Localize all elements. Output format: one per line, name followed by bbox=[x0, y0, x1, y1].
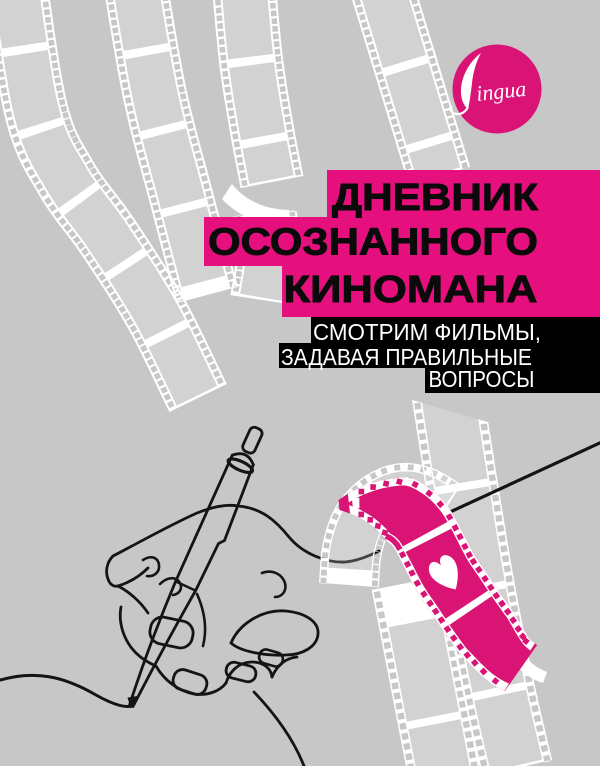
svg-text:ОСОЗНАННОГО: ОСОЗНАННОГО bbox=[208, 222, 538, 264]
svg-text:ingua: ingua bbox=[475, 76, 527, 106]
svg-text:КИНОМАНА: КИНОМАНА bbox=[284, 269, 538, 311]
svg-text:СМОТРИМ ФИЛЬМЫ,: СМОТРИМ ФИЛЬМЫ, bbox=[313, 319, 541, 345]
svg-text:ДНЕВНИК: ДНЕВНИК bbox=[332, 177, 539, 219]
svg-text:ВОПРОСЫ: ВОПРОСЫ bbox=[429, 366, 535, 392]
